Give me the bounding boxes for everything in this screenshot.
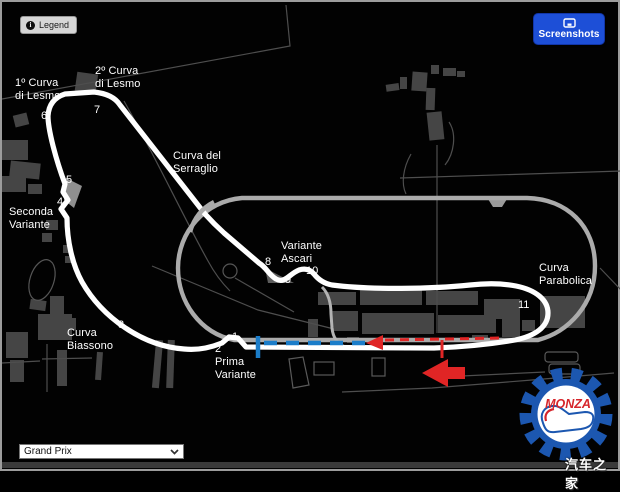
screenshot-icon <box>563 18 576 28</box>
legend-button[interactable]: i Legend <box>20 16 77 34</box>
monza-logo: MONZA <box>526 374 606 454</box>
layout-select[interactable]: Grand Prix <box>19 444 184 459</box>
main-track-path <box>48 92 548 349</box>
bottom-strip <box>2 462 618 468</box>
screenshots-button-label: Screenshots <box>538 29 599 40</box>
legend-button-label: Legend <box>39 20 69 30</box>
race-route-markers <box>258 335 502 387</box>
race-direction-arrow <box>422 359 465 387</box>
logo-text: MONZA <box>545 397 591 411</box>
layout-select-value: Grand Prix <box>24 446 72 457</box>
screenshots-button[interactable]: Screenshots <box>533 13 605 45</box>
chevron-down-icon <box>170 449 179 455</box>
circuit-map: MONZA <box>2 2 620 473</box>
app-frame: MONZA 1º Curva di Lesmo2º Curva di Lesmo… <box>0 0 620 471</box>
watermark: 汽车之家 <box>565 454 618 492</box>
info-icon: i <box>26 21 35 30</box>
